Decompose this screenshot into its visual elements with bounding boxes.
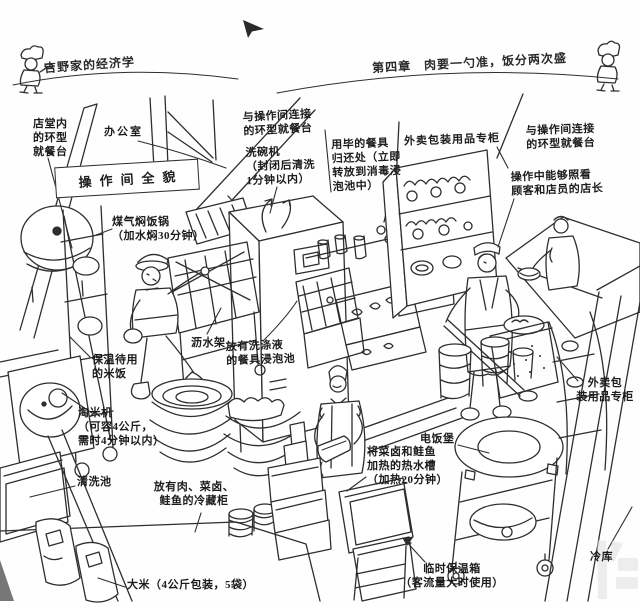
label-takeout-cabinet-right: 外卖包 装用品专柜 <box>574 376 636 404</box>
page-corner-shadow <box>0 560 14 601</box>
label-return-station: 用毕的餐具 归还处（立即 转放到消毒浸 泡池中） <box>331 136 402 195</box>
label-rice-washer: 淘米机 （可容4公斤， 需时4分钟以内） <box>78 406 165 448</box>
rice-sacks <box>36 519 118 602</box>
overview-title-text: 操作间全貌 <box>78 169 184 190</box>
label-gas-pot: 煤气焖饭锅 （加水焖30分钟） <box>112 215 205 243</box>
label-dining-ring-middle: 与操作间连接 的环型就餐台 <box>242 107 312 139</box>
label-hot-tank: 将菜卤和鲑鱼 加热的热水槽 （加热20分钟） <box>367 445 448 487</box>
office-structure <box>150 96 216 168</box>
label-cold-storage: 冷库 <box>590 550 613 564</box>
kitchen-illustration <box>0 0 640 603</box>
watermark <box>597 540 638 599</box>
label-soak-sink: 放有洗涤液 的餐具浸泡池 <box>226 338 296 369</box>
label-office: 办公室 <box>104 125 143 139</box>
label-manager: 操作中能够照看 顾客和店员的店长 <box>511 167 604 198</box>
chef-mascot-right-icon <box>597 41 620 91</box>
label-dining-ring-left: 店堂内 的环型 就餐台 <box>33 117 68 159</box>
label-rice-cooker: 电饭堡 <box>420 432 455 446</box>
label-wash-sink: 清洗池 <box>77 475 112 489</box>
rice-cooker-cart <box>448 417 563 584</box>
label-rice-bags: 大米（4公斤包装，5袋） <box>127 578 254 592</box>
label-dishwasher: 洗碗机 （封闭后清洗 1分钟以内） <box>245 144 315 189</box>
header-underlines <box>13 72 618 93</box>
label-drain-rack: 沥水架 <box>191 336 226 350</box>
label-temp-warmer: 临时保温箱 （客流量大时使用） <box>399 562 505 590</box>
label-dining-ring-right: 与操作间连接 的环型就餐台 <box>526 122 596 153</box>
cursor-arrow-mark <box>243 20 264 38</box>
label-warm-rice: 保温待用 的米饭 <box>92 353 138 381</box>
book-page: 吉野家的经济学 第四章 肉要一勺准，饭分两次盛 操作间全貌 店堂内 的环型 就餐… <box>0 0 640 603</box>
label-fridge: 放有肉、菜卤、 鲑鱼的冷藏柜 <box>146 480 242 508</box>
